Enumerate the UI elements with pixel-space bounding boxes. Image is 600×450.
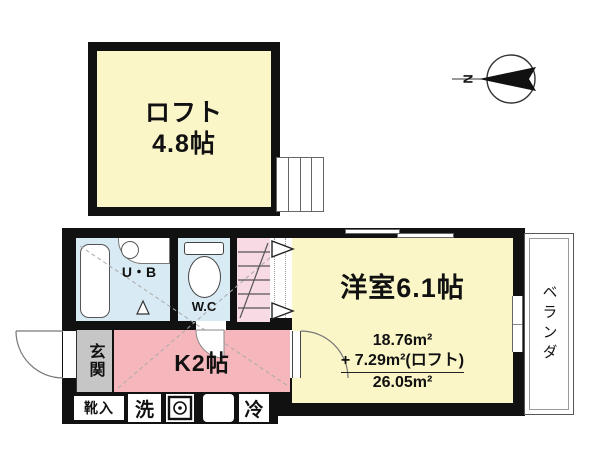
loft-ladder (276, 157, 324, 212)
entrance-hall: 玄関 (76, 330, 114, 392)
kitchen-sink (203, 394, 234, 422)
ladder-rung (277, 158, 289, 211)
loft-label: ロフト 4.8帖 (145, 98, 223, 161)
stove-burner-glyph (166, 394, 194, 422)
toilet-label: W.C (178, 299, 230, 314)
ladder-rung (301, 158, 313, 211)
floor-area-summary: 18.76m² + 7.29m²(ロフト) 26.05m² (307, 331, 498, 393)
compass-north-label: N (461, 74, 476, 83)
bathtub (80, 244, 110, 318)
wall-stub (270, 318, 292, 330)
veranda-window (512, 296, 523, 352)
stove-icon (166, 394, 194, 422)
area-total: 26.05m² (373, 373, 433, 393)
veranda: ベランダ (524, 233, 574, 415)
fridge-space: 冷 (239, 394, 269, 422)
western-room-door-leaf (292, 331, 301, 378)
toilet-door-opening (196, 321, 226, 330)
entrance-door-swing (16, 331, 63, 378)
area-loft: + 7.29m²(ロフト) (341, 351, 464, 373)
door-track-line (274, 238, 275, 322)
window-sash-line (513, 324, 522, 325)
ladder-rung (312, 158, 323, 211)
compass: N (452, 55, 536, 103)
ladder-rung (289, 158, 301, 211)
washbasin-icon (121, 241, 139, 259)
loft-stairs (237, 238, 270, 322)
western-room-label: 洋室6.1帖 (292, 266, 513, 305)
kitchen-room: K2帖 (114, 330, 290, 392)
kitchen-label: K2帖 (174, 344, 229, 378)
floorplan-canvas: ロフト 4.8帖 U・B W.C 洋室6.1帖 18.76m² + 7.29m²… (0, 0, 600, 450)
washer-space: 洗 (128, 394, 161, 422)
loft-name: ロフト (145, 98, 223, 129)
entrance-label: 玄関 (83, 343, 107, 379)
shoe-cabinet: 靴入 (74, 396, 124, 420)
sliding-door-track (270, 238, 292, 322)
loft-size: 4.8帖 (145, 129, 223, 160)
compass-circle (487, 55, 535, 103)
window-pane (397, 233, 454, 238)
toilet-tank-icon (184, 242, 224, 255)
compass-north-arrow (479, 67, 536, 91)
window-pane (345, 229, 400, 234)
toilet-bowl-icon (188, 256, 221, 298)
area-main: 18.76m² (373, 331, 433, 351)
entrance-door-opening (63, 331, 76, 378)
door-track-line (285, 238, 286, 322)
veranda-label: ベランダ (539, 284, 560, 364)
loft-room: ロフト 4.8帖 (88, 42, 280, 216)
unit-bath-label: U・B (108, 262, 170, 282)
